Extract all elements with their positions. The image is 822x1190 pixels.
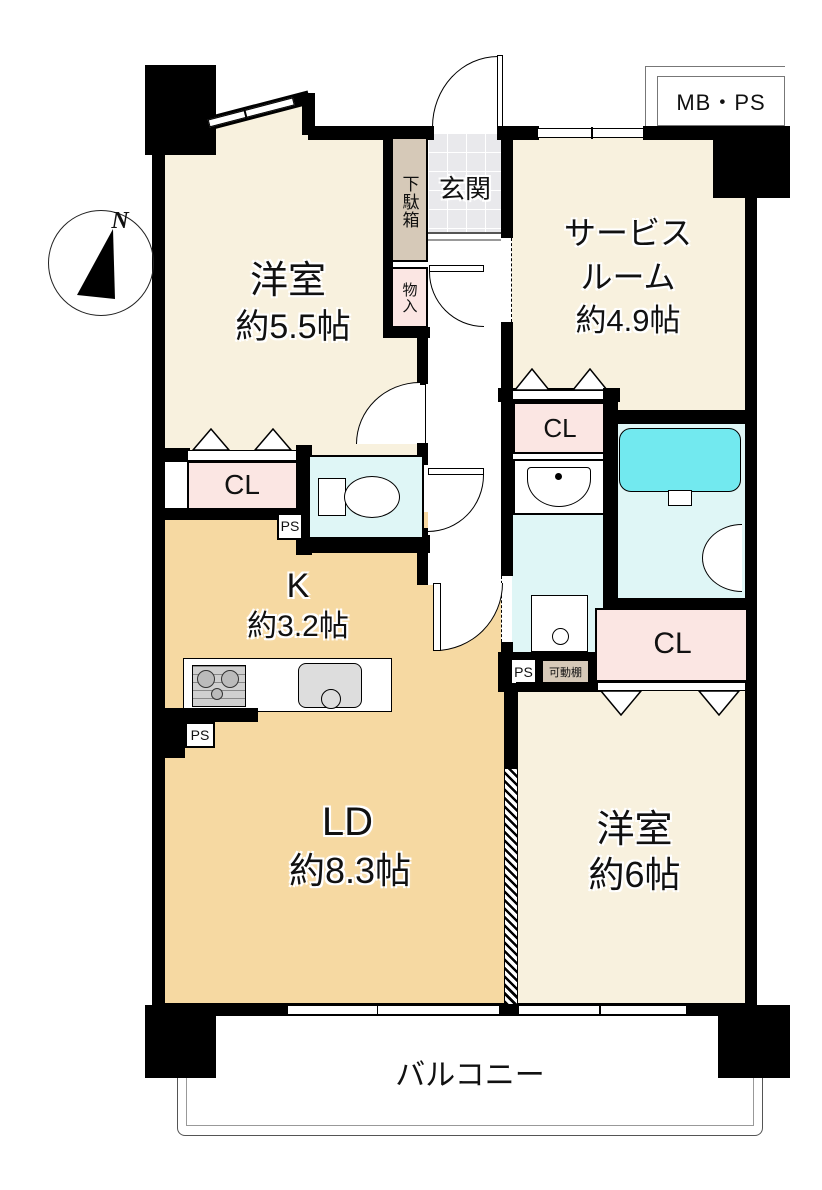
service-room-name-1: サービス (548, 211, 708, 251)
cl3-label: CL (520, 408, 600, 448)
wall-bath-top (603, 410, 757, 424)
pillar-top-left (145, 65, 216, 155)
toilet-tank (318, 478, 346, 516)
ps2-label: PS (186, 723, 214, 746)
movable-shelf-label: 可動棚 (542, 661, 589, 683)
kitchen-size: 約3.2帖 (228, 605, 368, 641)
stove (192, 665, 246, 707)
window-ld (287, 1005, 500, 1015)
entrance-step-line2 (428, 239, 502, 241)
west-room-1-door-leaf (419, 384, 426, 444)
compass-n-label: N (100, 206, 140, 236)
toilet-bowl (344, 476, 400, 518)
folding-door-icon (600, 690, 642, 716)
bathtub (619, 428, 741, 492)
pillar-bottom-right (718, 1005, 790, 1078)
folding-door-icon (254, 428, 292, 451)
folding-door-icon (192, 428, 230, 451)
wall-counter-stub (165, 722, 185, 758)
storage-label: 物入 (394, 274, 424, 322)
ld-name: LD (295, 800, 400, 844)
toilet-door-leaf (428, 468, 484, 475)
wall-hallR-b (501, 322, 513, 420)
west-room-2-size: 約6帖 (552, 850, 717, 894)
west-room-1-name: 洋室 (198, 253, 378, 299)
ld-door-leaf (433, 583, 441, 651)
entrance-door-leaf (497, 55, 503, 127)
pillar-top-right (713, 126, 790, 198)
partition-solid (504, 688, 518, 768)
washbasin (513, 459, 605, 515)
west-room-1-size: 約5.5帖 (198, 302, 388, 344)
entrance-door-arc-icon (432, 56, 498, 127)
service-room-sliding-door (501, 238, 512, 322)
cl1-folding-track (187, 450, 299, 461)
folding-door-icon (514, 368, 550, 391)
ld-size: 約8.3帖 (265, 846, 435, 890)
wall-hall-a (417, 332, 428, 384)
ps3-label: PS (510, 659, 537, 684)
kitchen-name: K (258, 566, 338, 606)
bath-step (668, 490, 692, 506)
cl3-folding-track (512, 390, 604, 400)
entrance-label: 玄関 (430, 170, 500, 204)
window-service-room (537, 128, 645, 138)
balcony-label: バルコニー (330, 1052, 610, 1092)
wall-hallR-a (501, 138, 513, 238)
kitchen-sink (298, 663, 362, 708)
floor-plan: N MB・PS 洋室 約5.5帖 サービス ルーム 約4.9帖 玄関 下駄箱 物… (0, 0, 822, 1190)
shoe-box-label: 下駄箱 (393, 158, 425, 246)
washing-machine-pan (531, 595, 588, 652)
storage-door-leaf (429, 265, 484, 272)
ps1-label: PS (277, 514, 303, 538)
service-room-size: 約4.9帖 (548, 297, 708, 337)
cl2-label: CL (630, 622, 715, 666)
west-room-2-name: 洋室 (552, 802, 717, 848)
folding-door-icon (698, 690, 740, 716)
wall-counter (165, 708, 258, 722)
partition-hatched (504, 768, 518, 1005)
mb-ps-label: MB・PS (657, 76, 785, 126)
service-room-name-2: ルーム (548, 255, 708, 295)
window-west-room-2 (518, 1005, 687, 1015)
cl1-label: CL (202, 464, 282, 506)
wall-hallR-c (501, 420, 513, 576)
pillar-bottom-left (145, 1005, 216, 1078)
entrance-step-line (428, 232, 502, 234)
